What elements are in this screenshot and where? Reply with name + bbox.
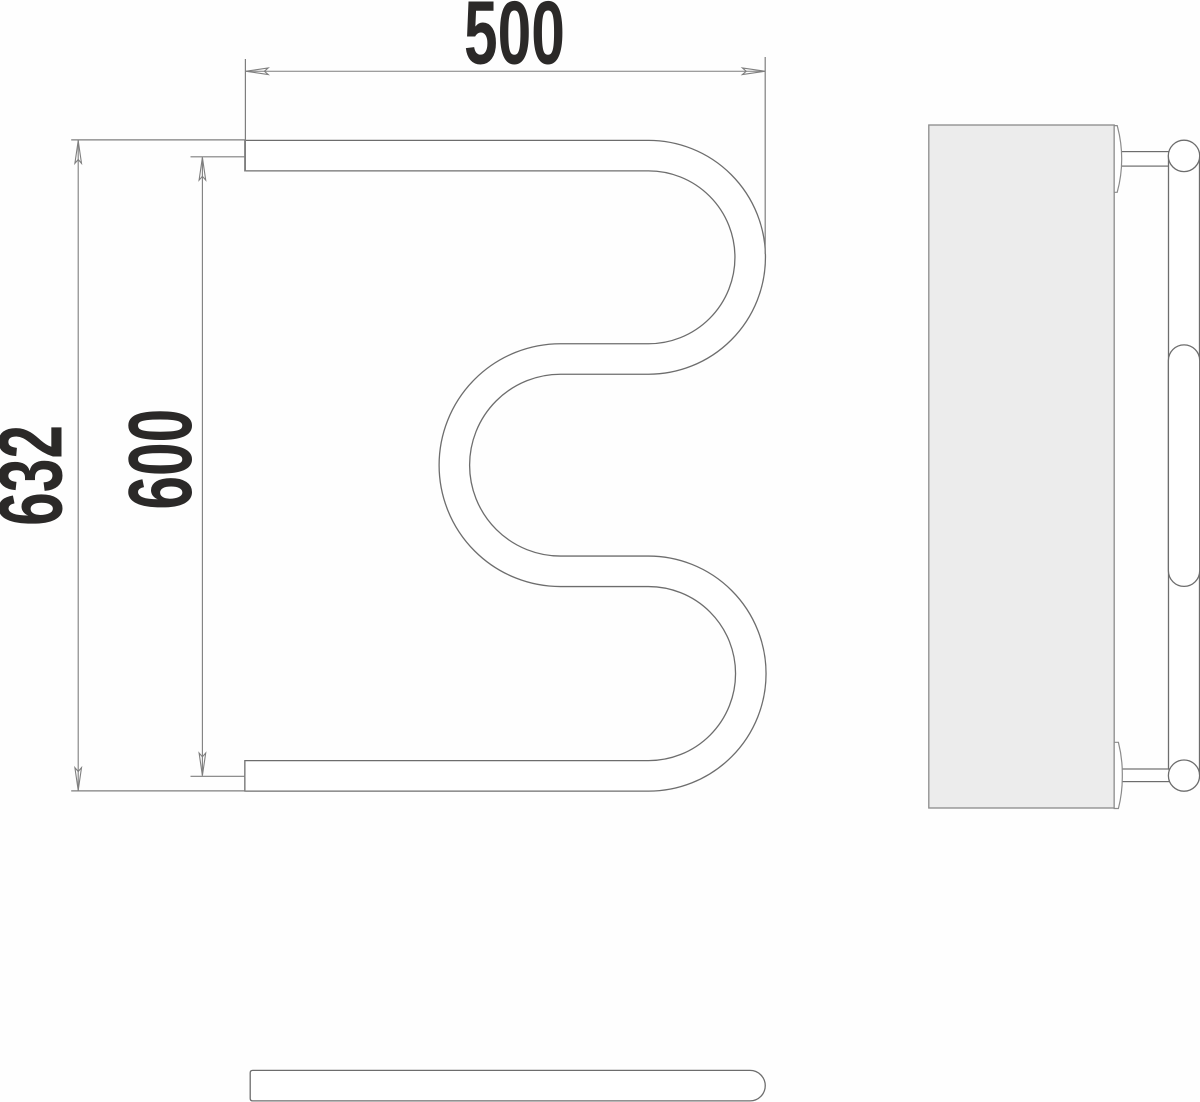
- svg-text:600: 600: [111, 409, 211, 510]
- svg-text:500: 500: [464, 0, 565, 83]
- svg-text:632: 632: [0, 425, 81, 526]
